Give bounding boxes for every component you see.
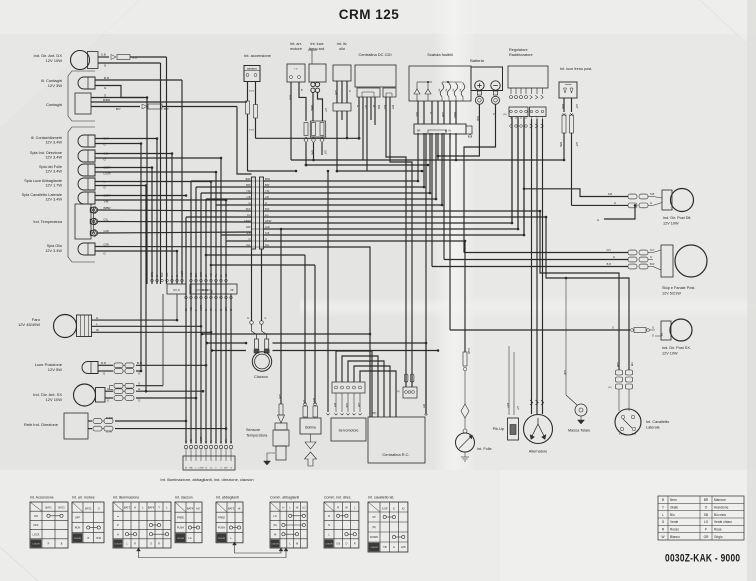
svg-text:Contagiri: Contagiri — [46, 102, 62, 107]
svg-text:Y/B: Y/B — [383, 546, 387, 549]
svg-text:B/W: B/W — [96, 537, 101, 540]
svg-text:Int. illuminazione, abbagliant: Int. illuminazione, abbaglianti, ind. di… — [160, 477, 253, 482]
svg-text:Laterale: Laterale — [646, 426, 660, 430]
svg-text:12V 5/21W: 12V 5/21W — [662, 292, 681, 296]
svg-text:G: G — [107, 387, 109, 391]
svg-text:N: N — [204, 441, 208, 443]
svg-text:Verde: Verde — [670, 520, 679, 524]
svg-text:Nero: Nero — [670, 498, 677, 502]
svg-text:Centralina DC CDI: Centralina DC CDI — [358, 52, 391, 57]
svg-text:B/W: B/W — [265, 177, 270, 181]
svg-text:G: G — [597, 218, 599, 222]
svg-text:6P: 6P — [230, 288, 233, 292]
svg-text:Batteria: Batteria — [470, 58, 485, 63]
svg-text:O: O — [175, 275, 179, 277]
svg-text:(N): (N) — [273, 523, 277, 527]
svg-text:LG: LG — [247, 213, 250, 217]
svg-text:HB: HB — [189, 307, 193, 311]
svg-text:BAT4: BAT4 — [148, 506, 155, 510]
svg-text:B/R: B/R — [377, 105, 381, 109]
svg-text:B/Y: B/Y — [422, 404, 426, 408]
svg-text:Temperatura: Temperatura — [246, 434, 268, 438]
svg-text:Blu: Blu — [670, 513, 675, 517]
svg-text:O: O — [107, 398, 109, 402]
svg-text:Spia del Folle: Spia del Folle — [39, 165, 62, 169]
svg-text:L/B: L/B — [247, 195, 251, 199]
svg-text:COLOR: COLOR — [218, 538, 226, 540]
svg-text:N: N — [204, 309, 208, 311]
svg-text:B/W: B/W — [561, 104, 565, 109]
svg-text:B.R: B.R — [265, 207, 269, 211]
svg-text:B/W: B/W — [150, 271, 154, 277]
svg-text:O: O — [219, 309, 223, 311]
svg-text:Arancione: Arancione — [714, 505, 729, 509]
svg-text:W/Y: W/Y — [506, 403, 510, 408]
svg-text:Stop e Fanale Post.: Stop e Fanale Post. — [662, 286, 695, 290]
svg-text:Int. Cavalletto: Int. Cavalletto — [646, 420, 669, 424]
svg-text:12V 10W: 12V 10W — [662, 352, 678, 356]
svg-text:BAT3: BAT3 — [228, 507, 235, 511]
svg-text:TL: TL — [209, 307, 213, 311]
svg-text:Int. Accensione: Int. Accensione — [30, 496, 54, 500]
svg-text:B/Y: B/Y — [116, 107, 121, 111]
svg-text:( B ): ( B ) — [396, 391, 400, 393]
svg-text:( B ): ( B ) — [608, 387, 612, 389]
svg-text:G: G — [247, 317, 249, 320]
svg-text:LWR: LWR — [632, 434, 637, 436]
svg-text:Int. luce freno post.: Int. luce freno post. — [560, 67, 592, 71]
svg-text:B/Y: B/Y — [194, 272, 198, 277]
svg-text:HB: HB — [209, 273, 213, 277]
svg-text:Int. cavalletto lat.: Int. cavalletto lat. — [368, 496, 394, 500]
svg-text:Y/R: Y/R — [265, 189, 269, 193]
svg-text:R: R — [337, 506, 339, 510]
svg-text:G: G — [393, 546, 395, 549]
svg-text:R/W: R/W — [476, 116, 480, 122]
svg-text:B/W: B/W — [559, 142, 563, 147]
svg-text:Int. clacson: Int. clacson — [175, 496, 193, 500]
svg-text:Centralina R.C.: Centralina R.C. — [382, 452, 409, 457]
svg-text:H: H — [134, 506, 136, 510]
svg-text:FREE: FREE — [177, 516, 184, 520]
svg-text:L: L — [662, 513, 664, 517]
svg-text:12V 10W: 12V 10W — [46, 397, 63, 402]
svg-text:(N): (N) — [372, 525, 376, 529]
svg-text:G/R: G/R — [104, 242, 110, 246]
svg-text:Rosso: Rosso — [670, 527, 679, 531]
svg-text:B/R: B/R — [265, 183, 269, 187]
svg-text:SB: SB — [704, 513, 708, 517]
svg-text:FREE: FREE — [218, 516, 225, 520]
svg-text:12V 45/40W: 12V 45/40W — [18, 322, 40, 327]
svg-text:Ind. Temperatura: Ind. Temperatura — [33, 220, 63, 224]
svg-text:R: R — [158, 543, 160, 546]
svg-text:B.R: B.R — [650, 262, 654, 266]
svg-text:CRM 125: CRM 125 — [339, 7, 400, 22]
svg-text:LB/W: LB/W — [244, 219, 251, 223]
svg-text:G/W: G/W — [401, 546, 407, 549]
svg-text:R: R — [429, 112, 433, 114]
svg-text:12V 3.4W: 12V 3.4W — [45, 156, 62, 160]
svg-text:L/Y: L/Y — [364, 105, 368, 109]
svg-text:G/R: G/R — [345, 403, 349, 408]
svg-text:G/B: G/B — [278, 394, 282, 399]
svg-text:S.B: S.B — [650, 192, 654, 196]
svg-text:B/BR: B/BR — [310, 105, 314, 111]
svg-text:B.R: B.R — [101, 361, 107, 365]
svg-text:COLOR: COLOR — [32, 544, 40, 546]
svg-text:LG: LG — [265, 213, 268, 217]
svg-text:0030Z-KAK - 9000: 0030Z-KAK - 9000 — [665, 552, 741, 564]
svg-text:LB/W: LB/W — [265, 219, 272, 223]
svg-text:(6P): (6P) — [372, 412, 377, 415]
svg-text:Comm. abbaglianti: Comm. abbaglianti — [270, 496, 299, 500]
svg-text:12V 3.4W: 12V 3.4W — [45, 249, 62, 253]
svg-text:COLOR: COLOR — [325, 544, 333, 546]
svg-text:H: H — [117, 532, 119, 536]
svg-text:COLOR: COLOR — [271, 544, 279, 546]
svg-text:B.R: B.R — [246, 207, 250, 211]
svg-text:COLOR: COLOR — [114, 544, 122, 546]
svg-text:W: W — [184, 440, 188, 443]
svg-text:B/Y: B/Y — [333, 403, 337, 407]
svg-text:G/R: G/R — [199, 272, 203, 277]
svg-text:COLOR: COLOR — [177, 538, 185, 540]
svg-text:E: E — [393, 506, 395, 510]
svg-text:6P: 6P — [417, 129, 420, 133]
svg-text:Blu cielo: Blu cielo — [714, 513, 726, 517]
svg-text:B/BR: B/BR — [103, 98, 111, 102]
svg-text:Y: Y — [214, 309, 218, 311]
svg-text:B/W: B/W — [246, 177, 251, 181]
svg-text:G/B: G/B — [334, 90, 338, 95]
svg-text:LG/R: LG/R — [467, 348, 471, 354]
svg-text:PUSH: PUSH — [177, 526, 184, 530]
svg-text:G: G — [652, 333, 654, 337]
svg-text:B/BR: B/BR — [106, 416, 114, 420]
svg-text:motore: motore — [290, 47, 302, 51]
svg-text:12V 10W: 12V 10W — [46, 58, 63, 63]
svg-text:Spia Luce Abbagliante: Spia Luce Abbagliante — [24, 179, 62, 183]
svg-text:W: W — [184, 308, 188, 311]
svg-text:M I N: M I N — [173, 288, 179, 292]
svg-text:BAT4: BAT4 — [187, 507, 194, 511]
svg-text:Bianco: Bianco — [670, 535, 680, 539]
svg-text:Spia Cavalletto Laterale: Spia Cavalletto Laterale — [22, 193, 62, 197]
svg-text:12V 3W: 12V 3W — [48, 83, 62, 88]
svg-text:S.B: S.B — [265, 231, 269, 235]
svg-text:H: H — [282, 506, 284, 510]
svg-text:O: O — [302, 400, 306, 402]
svg-text:LG/R: LG/R — [180, 271, 184, 277]
svg-text:HI: HI — [238, 507, 241, 511]
svg-text:Massa Telaio: Massa Telaio — [568, 429, 590, 433]
svg-text:B.R: B.R — [160, 272, 164, 277]
svg-text:G: G — [650, 255, 652, 259]
svg-text:B/Y: B/Y — [391, 105, 395, 109]
svg-text:G: G — [155, 275, 159, 277]
svg-text:Ill. Contachilometri: Ill. Contachilometri — [31, 136, 62, 140]
svg-text:G/R: G/R — [265, 225, 270, 229]
svg-text:( B ): ( B ) — [503, 114, 507, 116]
svg-text:O: O — [150, 543, 152, 546]
svg-text:Int. abbaglianti: Int. abbaglianti — [216, 496, 239, 500]
svg-text:Raddrizzatore: Raddrizzatore — [509, 53, 533, 57]
svg-text:L/Y: L/Y — [516, 406, 520, 410]
svg-text:Y: Y — [214, 441, 218, 443]
svg-text:RUN: RUN — [75, 526, 81, 530]
svg-text:G/L: G/L — [265, 243, 270, 247]
svg-text:LG/R: LG/R — [199, 468, 204, 470]
svg-text:HI: HI — [274, 532, 277, 536]
svg-text:S.B: S.B — [132, 56, 137, 60]
svg-text:BR: BR — [704, 498, 709, 502]
svg-text:R: R — [48, 543, 50, 546]
svg-text:Relè Ind. Direzione: Relè Ind. Direzione — [24, 422, 59, 427]
svg-text:GR: GR — [704, 535, 709, 539]
svg-text:B/Y: B/Y — [224, 306, 228, 311]
svg-text:R: R — [134, 543, 136, 546]
svg-text:Bobina: Bobina — [305, 426, 316, 430]
svg-text:BAT2: BAT2 — [58, 506, 65, 510]
svg-text:G: G — [492, 113, 496, 115]
svg-text:B/R: B/R — [246, 183, 250, 187]
svg-text:O: O — [265, 237, 267, 241]
svg-text:S.SP: S.SP — [619, 434, 624, 436]
svg-text:G: G — [265, 201, 267, 205]
svg-text:Pik-Up: Pik-Up — [493, 427, 504, 431]
svg-text:O: O — [346, 543, 348, 546]
svg-text:freno ant.: freno ant. — [309, 47, 325, 51]
svg-text:LOCK: LOCK — [32, 532, 39, 536]
svg-text:COLOR: COLOR — [74, 538, 82, 540]
svg-text:Spia Olio: Spia Olio — [47, 244, 62, 248]
svg-text:Ind. Dir. Post Dlt.: Ind. Dir. Post Dlt. — [663, 216, 692, 220]
svg-text:Verde chiaro: Verde chiaro — [714, 520, 732, 524]
svg-text:L/B: L/B — [265, 195, 269, 199]
svg-text:UP: UP — [372, 515, 376, 519]
svg-text:Regolatore: Regolatore — [509, 48, 528, 52]
svg-text:W: W — [204, 274, 208, 277]
svg-text:Int. accensione: Int. accensione — [244, 53, 272, 58]
svg-text:G: G — [98, 507, 100, 511]
svg-text:TL: TL — [214, 273, 218, 277]
svg-text:ON: ON — [34, 514, 38, 518]
svg-text:O: O — [652, 326, 654, 330]
svg-text:L/Y: L/Y — [324, 108, 328, 112]
svg-text:DOWN: DOWN — [370, 535, 378, 539]
svg-text:Giallo: Giallo — [670, 505, 678, 509]
svg-text:G: G — [348, 90, 352, 92]
svg-text:Spia Ind. Direzione: Spia Ind. Direzione — [30, 151, 62, 155]
svg-text:xxxx: xxxx — [249, 129, 255, 132]
svg-text:G/Y: G/Y — [575, 104, 579, 109]
svg-text:12V 3.4W: 12V 3.4W — [45, 170, 62, 174]
svg-text:Int. luce: Int. luce — [310, 42, 323, 46]
svg-text:LG/R: LG/R — [199, 305, 203, 311]
svg-text:N: N — [219, 275, 223, 277]
svg-text:S.B: S.B — [101, 53, 106, 57]
svg-text:L/B: L/B — [357, 403, 361, 407]
svg-text:I G: I G — [295, 69, 298, 71]
svg-text:G: G — [356, 105, 360, 107]
svg-text:S.SP: S.SP — [382, 506, 388, 510]
svg-text:BAT3: BAT3 — [124, 506, 131, 510]
svg-text:O: O — [219, 441, 223, 443]
svg-text:B.R: B.R — [383, 105, 387, 109]
svg-text:G/B: G/B — [563, 370, 567, 375]
svg-text:G/R: G/R — [246, 225, 251, 229]
svg-text:LB: LB — [224, 274, 228, 277]
svg-text:O: O — [248, 237, 250, 241]
svg-text:G: G — [265, 317, 267, 320]
svg-text:xxxx: xxxx — [249, 90, 255, 93]
svg-text:G: G — [248, 201, 250, 205]
svg-text:S.B: S.B — [165, 272, 169, 277]
svg-text:G/Y: G/Y — [607, 248, 612, 252]
svg-text:G/Y: G/Y — [324, 150, 328, 155]
svg-text:Rosa: Rosa — [714, 527, 722, 531]
svg-text:Marrone: Marrone — [714, 498, 726, 502]
svg-text:LG: LG — [704, 520, 709, 524]
svg-text:W: W — [185, 468, 187, 470]
svg-text:W: W — [96, 328, 99, 332]
svg-text:Int. arr. motore: Int. arr. motore — [72, 496, 95, 500]
svg-text:LO: LO — [273, 514, 276, 518]
svg-text:G/Y: G/Y — [650, 248, 655, 252]
svg-text:M I N: M I N — [202, 288, 208, 292]
svg-text:G.W: G.W — [106, 429, 112, 433]
svg-text:Grigio: Grigio — [714, 535, 723, 539]
svg-text:B.R: B.R — [137, 361, 143, 365]
svg-text:Y/B: Y/B — [189, 272, 193, 277]
svg-text:OFF: OFF — [75, 516, 81, 520]
svg-text:IG: IG — [402, 506, 405, 510]
svg-text:LG: LG — [188, 537, 191, 540]
svg-text:BAT1BAT2: BAT1BAT2 — [247, 67, 257, 70]
svg-text:P: P — [705, 527, 707, 531]
svg-text:B.R: B.R — [607, 262, 611, 266]
svg-text:HO: HO — [196, 507, 200, 511]
svg-text:Y/B: Y/B — [630, 362, 634, 366]
svg-text:olio: olio — [339, 47, 345, 51]
svg-text:Servomotore: Servomotore — [338, 429, 358, 433]
svg-text:12V 5W: 12V 5W — [48, 367, 62, 372]
svg-text:Clacson: Clacson — [254, 375, 268, 379]
svg-text:R: R — [328, 514, 330, 518]
svg-text:Alternatore: Alternatore — [529, 450, 548, 454]
svg-text:B/BR: B/BR — [104, 206, 112, 210]
svg-text:O: O — [612, 326, 614, 330]
svg-text:BAT2: BAT2 — [85, 507, 92, 511]
svg-text:G/W: G/W — [616, 362, 620, 368]
svg-text:R: R — [354, 543, 356, 546]
svg-text:B/BR: B/BR — [453, 112, 457, 118]
svg-text:B/W: B/W — [289, 95, 293, 100]
svg-text:OFF: OFF — [33, 523, 39, 527]
svg-text:12V 1.7W: 12V 1.7W — [45, 184, 62, 188]
svg-text:P: P — [117, 523, 119, 527]
svg-text:TL: TL — [209, 439, 213, 443]
svg-text:Int. Illuminazione: Int. Illuminazione — [113, 496, 139, 500]
svg-text:G: G — [650, 201, 652, 205]
svg-text:12V 10W: 12V 10W — [663, 222, 679, 226]
svg-text:G/R: G/R — [104, 229, 110, 233]
svg-text:B: B — [662, 498, 664, 502]
svg-text:Int. Folle: Int. Folle — [477, 447, 492, 451]
svg-text:G/Y: G/Y — [575, 142, 579, 147]
svg-text:S.B: S.B — [608, 192, 612, 196]
svg-text:B/Y: B/Y — [224, 438, 228, 443]
svg-text:R/G: R/G — [415, 112, 419, 117]
svg-text:PUSH: PUSH — [218, 526, 225, 530]
svg-text:12V 3.4W: 12V 3.4W — [45, 198, 62, 202]
svg-text:G/W: G/W — [441, 112, 445, 118]
svg-text:B/Y: B/Y — [312, 398, 316, 402]
svg-text:Ind. Dir. Post SX.: Ind. Dir. Post SX. — [662, 346, 691, 350]
svg-text:LO: LO — [302, 506, 305, 510]
svg-text:G/L: G/L — [104, 217, 109, 221]
svg-text:G/L: G/L — [246, 243, 251, 247]
svg-text:Sensore: Sensore — [246, 428, 260, 432]
svg-text:COLOR: COLOR — [370, 547, 378, 549]
svg-text:N: N — [328, 523, 330, 527]
svg-text:LG/R: LG/R — [199, 437, 203, 443]
svg-text:G: G — [229, 441, 233, 443]
svg-text:Int. arr.: Int. arr. — [290, 42, 302, 46]
svg-text:HI: HI — [296, 506, 299, 510]
svg-text:W: W — [661, 535, 664, 539]
svg-text:Scatola fusibili: Scatola fusibili — [427, 52, 453, 57]
svg-text:12V 3.4W: 12V 3.4W — [45, 141, 62, 145]
svg-text:S.B: S.B — [336, 543, 340, 546]
svg-text:B/W: B/W — [311, 150, 315, 155]
svg-text:Comm. ind. direz.: Comm. ind. direz. — [324, 496, 351, 500]
svg-text:BAT1: BAT1 — [45, 506, 52, 510]
svg-text:Y/R: Y/R — [246, 189, 250, 193]
svg-text:G: G — [613, 255, 615, 259]
svg-text:M I N: M I N — [445, 130, 451, 133]
svg-text:G: G — [614, 201, 616, 205]
svg-text:S.B: S.B — [246, 231, 250, 235]
svg-text:Int. liv.: Int. liv. — [337, 42, 348, 46]
svg-text:B.R: B.R — [104, 76, 110, 80]
svg-text:HB: HB — [189, 439, 193, 443]
svg-text:G: G — [229, 309, 233, 311]
